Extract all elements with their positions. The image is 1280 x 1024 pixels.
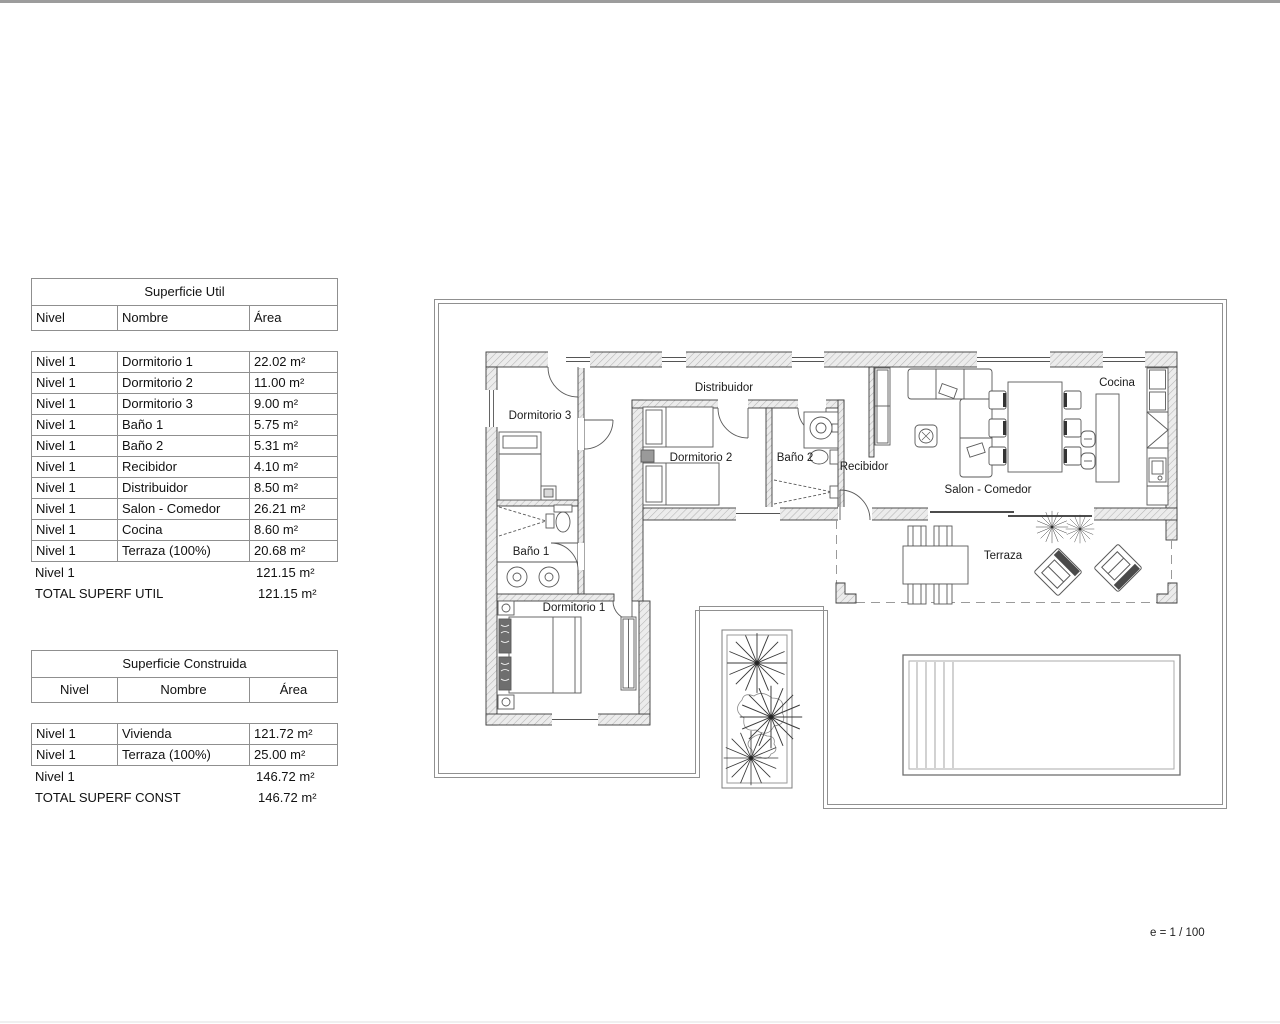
room-label-bano1: Baño 1: [513, 546, 549, 558]
room-label-dormitorio1: Dormitorio 1: [543, 602, 606, 614]
scale-note: e = 1 / 100: [1150, 927, 1230, 939]
floor-plan-page: Superficie Util Nivel Nombre Área Nivel …: [0, 0, 1280, 1024]
room-label-terraza: Terraza: [984, 550, 1023, 562]
room-label-dormitorio2: Dormitorio 2: [670, 452, 733, 464]
swimming-pool: [903, 655, 1180, 775]
room-label-bano2: Baño 2: [777, 452, 813, 464]
room-label-cocina: Cocina: [1099, 377, 1135, 389]
salon-furniture: [908, 369, 1081, 477]
recibidor-closet: [875, 368, 890, 445]
dormitorio1-furniture: [498, 601, 636, 709]
room-label-distribuidor: Distribuidor: [695, 382, 753, 394]
garden-planter: [722, 630, 802, 788]
dormitorio3-furniture: [499, 432, 556, 500]
room-label-salon: Salon - Comedor: [945, 484, 1032, 496]
terraza-pillars: [836, 583, 1177, 603]
room-label-recibidor: Recibidor: [840, 461, 889, 473]
bottom-divider: [0, 1021, 1280, 1023]
terraza-dining-set: [903, 526, 968, 604]
floor-plan-drawing: Distribuidor Dormitorio 3 Dormitorio 2 B…: [0, 0, 1280, 1024]
room-label-dormitorio3: Dormitorio 3: [509, 410, 572, 422]
lounge-chairs: [1034, 544, 1142, 596]
